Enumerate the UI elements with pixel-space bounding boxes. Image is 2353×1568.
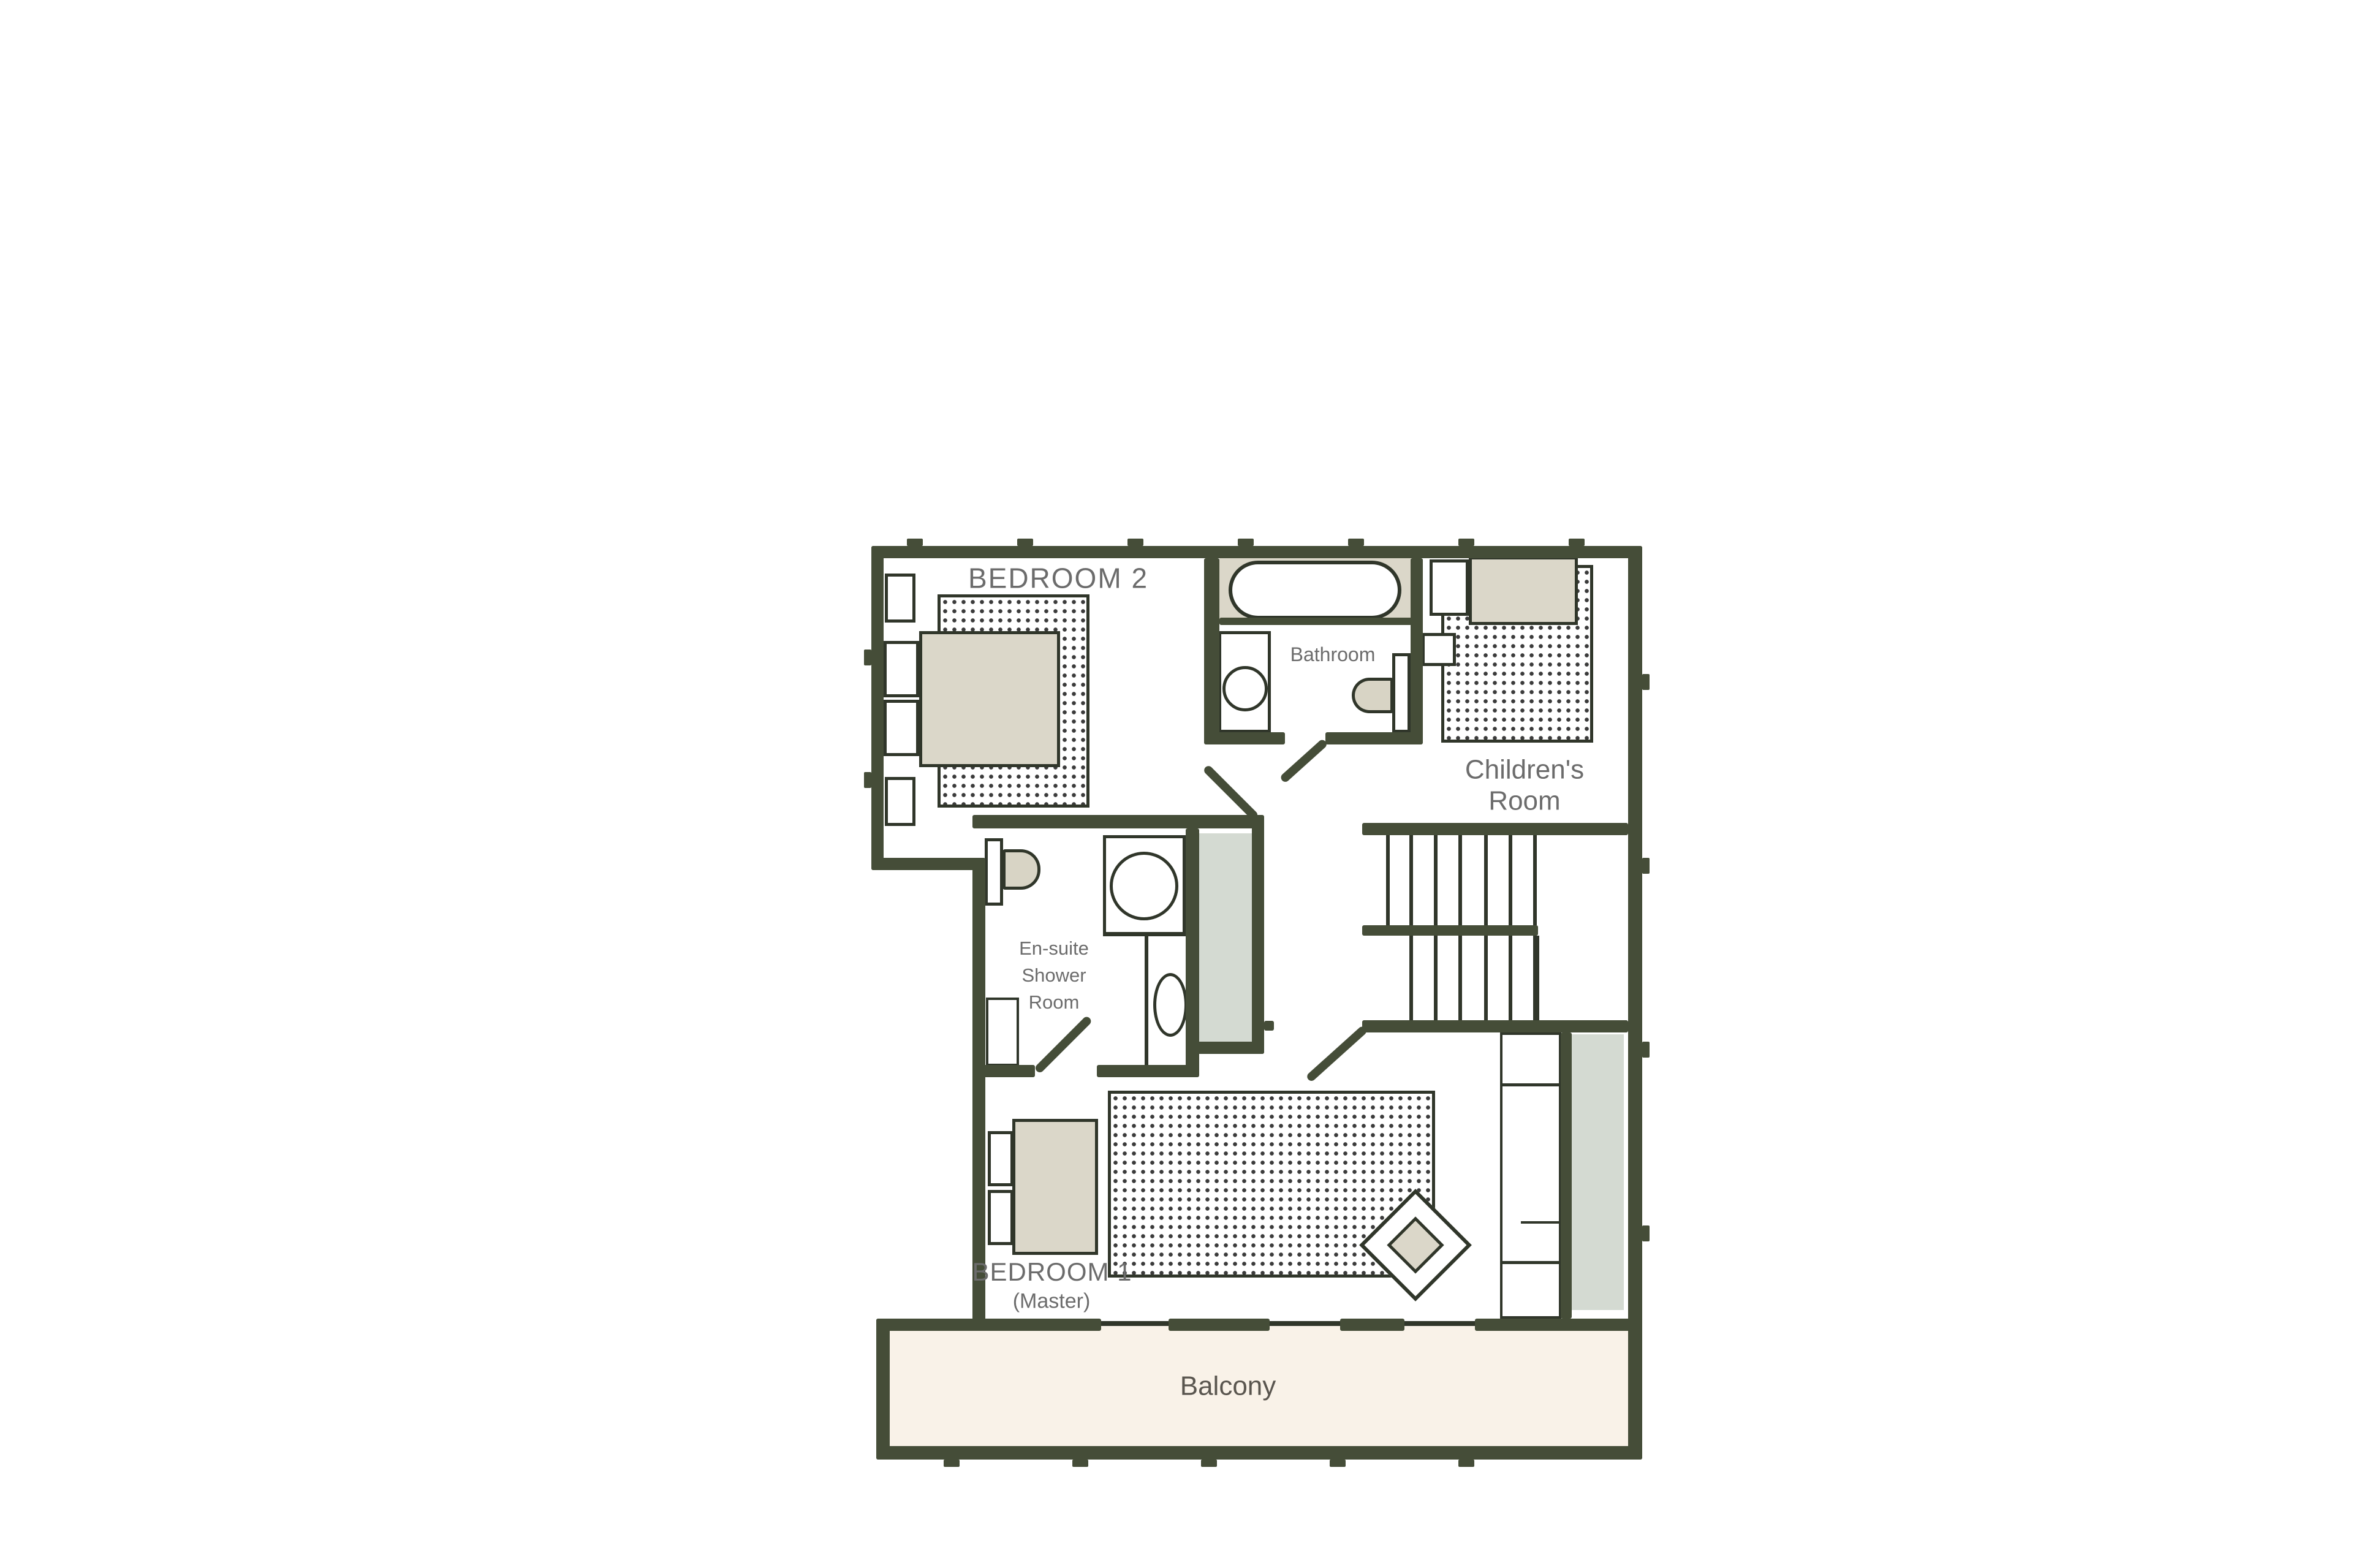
bedroom2-pillow-top <box>884 641 919 697</box>
ensuite-door-leaf <box>1034 1015 1093 1074</box>
wall-tick <box>1072 1460 1088 1467</box>
wall-tick <box>1642 1225 1650 1241</box>
bathtub-icon <box>1229 561 1401 619</box>
bedroom1-door-leaf <box>1305 1025 1368 1083</box>
balcony-wall-left <box>876 1319 890 1460</box>
wall-tick <box>1458 539 1474 546</box>
bathroom-south-wall-right <box>1325 732 1423 744</box>
wall-tick <box>1127 539 1143 546</box>
closet-shelf-3 <box>1521 1221 1561 1224</box>
wall-bedroom2-ensuite <box>972 815 1264 828</box>
bathroom-toilet-icon <box>1352 678 1393 713</box>
childrens-bed <box>1469 556 1578 625</box>
wall-tick <box>1458 1460 1474 1467</box>
wardrobe-west-wall <box>1561 1032 1572 1319</box>
balcony-door-glazing-1 <box>1101 1321 1169 1326</box>
bedroom2-bed <box>919 631 1060 767</box>
wall-tick <box>1238 539 1254 546</box>
bedroom2-label: BEDROOM 2 <box>968 561 1148 595</box>
wall-tick <box>1330 1460 1346 1467</box>
ensuite-counter-edge-v <box>1145 935 1148 1067</box>
wall-tick <box>1569 539 1585 546</box>
childrens-nightstand <box>1422 633 1456 666</box>
wall-tick <box>907 539 923 546</box>
wall-tick <box>1201 1460 1217 1467</box>
ensuite-south-wall-left <box>972 1065 1035 1077</box>
bedroom2-door-leaf <box>1202 764 1259 821</box>
closet-shelf-1 <box>1500 1083 1561 1086</box>
ensuite-counter-edge-h <box>1103 933 1186 936</box>
bedroom1-pillow-top <box>988 1131 1014 1186</box>
bathroom-shower-icon <box>1222 666 1268 711</box>
corridor-door-stop <box>1264 1021 1274 1031</box>
ensuite-toilet-icon <box>1002 849 1040 890</box>
bedroom2-nightstand-bottom <box>885 777 915 826</box>
stairs-mid-landing-wall <box>1362 925 1538 936</box>
ensuite-label: En-suite Shower Room <box>1019 935 1089 1016</box>
ensuite-south-wall-right <box>1097 1065 1199 1077</box>
balcony-door-glazing-3 <box>1404 1321 1475 1326</box>
wall-tick <box>864 772 871 788</box>
wall-tick <box>1642 858 1650 874</box>
bedroom1-closet <box>1500 1032 1561 1319</box>
bathtub-platform-edge <box>1219 618 1412 625</box>
bathroom-south-wall-left <box>1204 732 1285 744</box>
wall-bedroom2-bathroom <box>1204 558 1219 740</box>
bedroom1-south-wall-a <box>972 1319 1101 1331</box>
balcony-door-glazing-2 <box>1270 1321 1340 1326</box>
wall-tick <box>864 650 871 665</box>
balcony-wall-bottom <box>876 1446 1642 1460</box>
bedroom1-sublabel: (Master) <box>1013 1289 1091 1314</box>
bedroom1-bed <box>1012 1119 1098 1255</box>
bedroom1-south-wall-d <box>1475 1319 1642 1331</box>
ensuite-cabinet <box>986 998 1019 1066</box>
duct-zone-south-wall <box>1186 1042 1264 1054</box>
floor-plan: BEDROOM 2 Bathroom Children's Room En-su… <box>0 0 2353 1568</box>
wall-tick <box>944 1460 960 1467</box>
bedroom1-south-wall-b <box>1169 1319 1270 1331</box>
outer-wall-left-upper <box>871 546 884 870</box>
corridor-wall <box>1252 816 1264 1054</box>
wall-tick <box>1348 539 1364 546</box>
bedroom1-pillow-bottom <box>988 1190 1014 1245</box>
ensuite-east-wall <box>1186 828 1199 1068</box>
wall-tick <box>1642 674 1650 690</box>
ensuite-shower-icon <box>1110 852 1178 920</box>
childrens-room-label: Children's Room <box>1465 754 1584 816</box>
bedroom2-pillow-bottom <box>884 700 919 756</box>
wardrobe-zone <box>1572 1034 1624 1310</box>
stairs-top-wall <box>1362 823 1628 835</box>
ensuite-toilet-tank <box>985 838 1003 906</box>
balcony-label: Balcony <box>1180 1371 1276 1403</box>
wall-bathroom-childrens <box>1411 558 1423 743</box>
closet-shelf-2 <box>1500 1261 1561 1264</box>
wall-tick <box>1017 539 1033 546</box>
bathroom-label: Bathroom <box>1290 643 1376 666</box>
balcony-wall-top-left <box>876 1319 985 1331</box>
bedroom1-label: BEDROOM 1 <box>972 1257 1132 1287</box>
bedroom1-south-wall-c <box>1340 1319 1404 1331</box>
bedroom2-nightstand-top <box>885 574 915 623</box>
bathroom-door-leaf <box>1279 738 1328 784</box>
stairs-bottom-wall <box>1362 1020 1628 1032</box>
childrens-pillow <box>1430 559 1469 616</box>
wall-tick <box>1642 1042 1650 1058</box>
ensuite-duct-zone <box>1199 833 1254 1045</box>
outer-wall-top <box>871 546 1642 558</box>
outer-wall-step <box>871 858 985 870</box>
bathroom-toilet-tank <box>1392 653 1411 733</box>
ensuite-sink-icon <box>1153 973 1188 1037</box>
